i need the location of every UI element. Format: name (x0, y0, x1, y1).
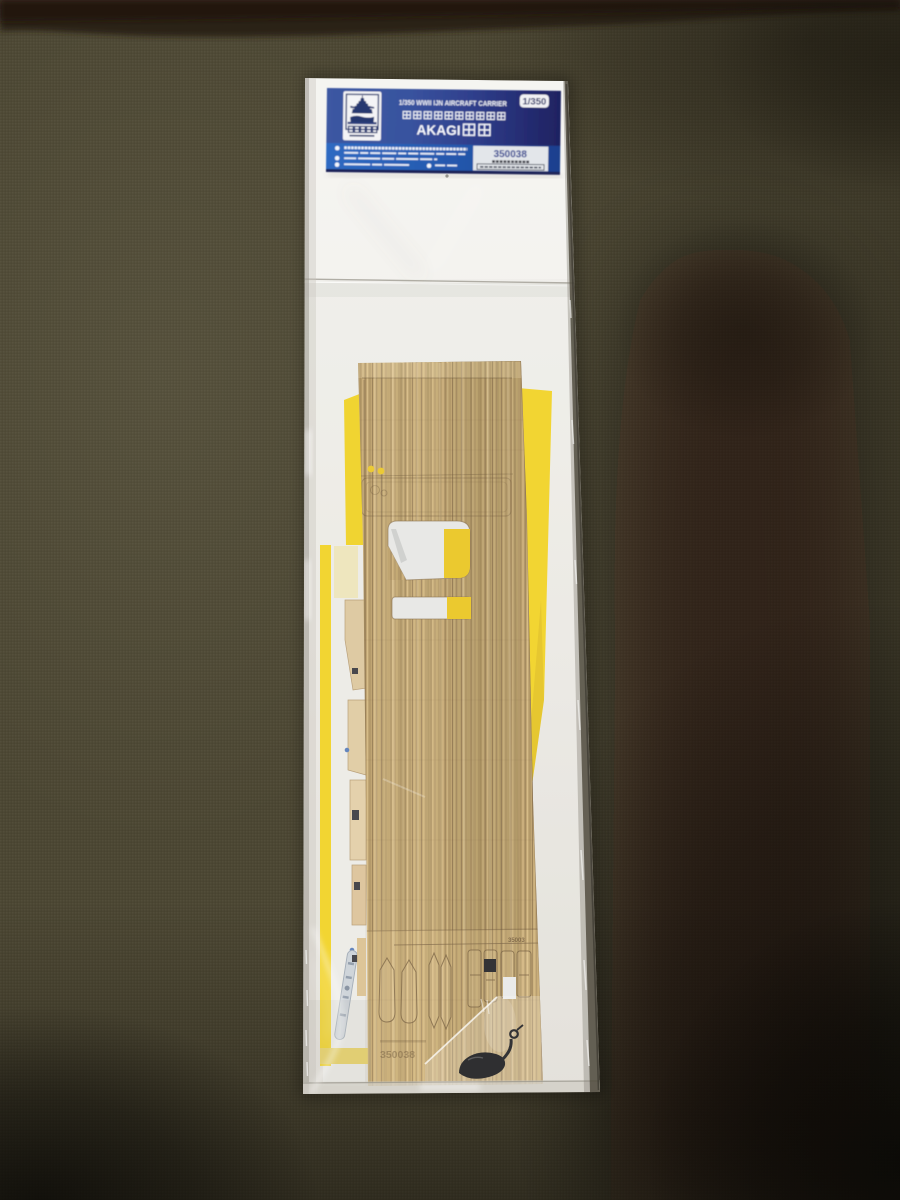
svg-text:AKAGI: AKAGI (416, 123, 460, 139)
svg-text:1/350 WWII IJN AIRCRAFT CARRIE: 1/350 WWII IJN AIRCRAFT CARRIER (399, 98, 508, 108)
svg-text:350038: 350038 (493, 149, 527, 160)
svg-text:1/350: 1/350 (522, 96, 546, 107)
